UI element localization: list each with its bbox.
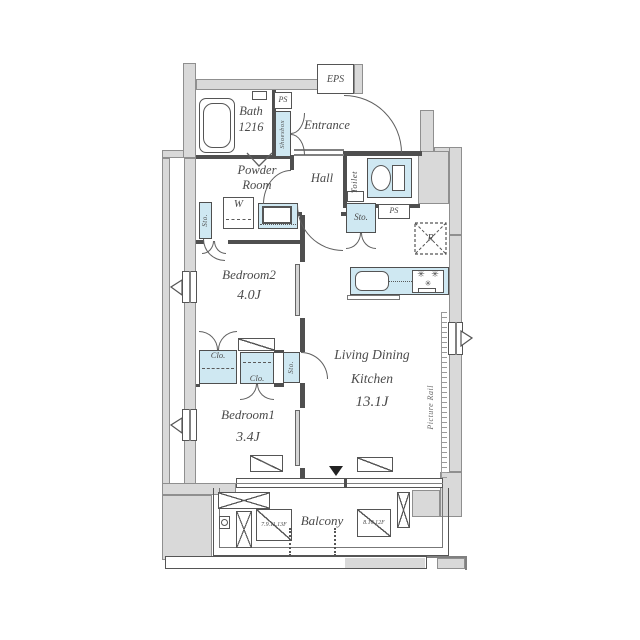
site-strip-gray	[345, 558, 425, 568]
wall-ldk-west-2	[300, 318, 305, 352]
counter-shelf	[347, 295, 400, 300]
ac-unit-left-label: 7.9.11.13F	[261, 522, 287, 529]
vent-triangle-right	[460, 330, 473, 347]
kitchen-sink	[355, 271, 389, 291]
ps-top-label: PS	[279, 96, 288, 105]
sto-bedroom-label: Sto.	[288, 361, 296, 374]
fridge-label: R	[414, 222, 447, 255]
ps-side-box: PS	[378, 204, 410, 219]
closet-left-door-r	[218, 331, 237, 350]
site-strip-end	[465, 556, 467, 570]
bedroom1-sliding-door	[295, 410, 300, 466]
washer-label: W	[234, 198, 243, 210]
wall-top-left-stub	[183, 63, 196, 158]
ldk-size: 13.1J	[320, 394, 424, 411]
balcony-drain-circle	[221, 519, 228, 526]
equipment-box-left	[236, 511, 252, 548]
toilet-bowl	[371, 165, 391, 191]
sto-hall-label: Sto.	[354, 213, 368, 223]
closet-left-door-l	[199, 331, 218, 350]
picture-rail-label-wrap: Picture Rail	[424, 362, 438, 452]
equipment-box-horizontal	[218, 492, 270, 509]
bath-size: 1216	[228, 121, 274, 135]
wall-storage-bottom-stub	[274, 383, 284, 387]
hall-label: Hall	[300, 172, 344, 186]
shoesbox-label: Shoesbox	[279, 120, 286, 149]
wall-right-upper	[449, 147, 462, 235]
washer-box: W	[223, 197, 254, 229]
toilet-tank	[392, 165, 405, 191]
closet-mid-door-r	[257, 384, 274, 400]
site-strip-ext-gray	[437, 558, 465, 569]
wall-powder-bottom-b	[228, 240, 304, 244]
powder-room-label-1: Powder	[224, 164, 290, 178]
wall-entry-right	[420, 110, 434, 157]
vent-triangle-left-upper	[170, 279, 183, 296]
equipment-box-right	[397, 492, 410, 528]
shoesbox: Shoesbox	[275, 111, 291, 157]
bedroom1-size: 3.4J	[204, 430, 292, 445]
sto-bedroom-box: Sto.	[283, 352, 300, 383]
eps-box: EPS	[317, 64, 354, 94]
beam-bedroom1	[250, 455, 283, 472]
toilet-label-wrap: Toilet	[347, 160, 362, 204]
sto-powder-label: Sto.	[202, 214, 210, 227]
closet-mid-rod	[243, 362, 271, 363]
wall-bedroom1-top-stub	[196, 384, 200, 387]
balcony-window-mullion	[344, 478, 347, 488]
wall-powder-hall-a	[290, 155, 294, 170]
sto-hall-box: Sto.	[346, 203, 376, 233]
wall-far-left	[162, 158, 170, 491]
window-left-upper-mullion	[189, 271, 191, 303]
ldk-label-2: Kitchen	[320, 372, 424, 387]
ac-unit-right-label: 8.10.12F	[363, 520, 385, 527]
bathtub-inner	[203, 103, 231, 148]
closet-mid-label: Clo.	[250, 374, 264, 383]
vent-triangle-left-lower	[170, 417, 183, 434]
bedroom2-sliding-door	[295, 264, 300, 316]
closet-left-rod	[202, 368, 234, 369]
closet-left-label: Clo.	[211, 351, 225, 360]
entrance-label: Entrance	[294, 119, 360, 133]
ldk-label-1: Living Dining	[320, 348, 424, 363]
balcony-window-centerline	[236, 483, 443, 485]
closet-left: Clo.	[199, 350, 237, 384]
ps-side-label: PS	[390, 207, 399, 216]
sto-powder-box: Sto.	[199, 202, 212, 239]
bedroom2-name: Bedroom2	[206, 268, 292, 282]
fridge-space: R	[414, 222, 447, 255]
window-left-lower-mullion	[189, 409, 191, 441]
balcony-divider-2	[334, 528, 336, 556]
wall-left-step	[162, 150, 184, 158]
toilet-label: Toilet	[350, 171, 359, 193]
powder-room-label-2: Room	[224, 179, 290, 193]
balcony-label: Balcony	[292, 514, 352, 528]
sto-hall-door-arc-l	[346, 233, 361, 249]
eps-label: EPS	[327, 74, 344, 85]
ac-unit-right: 8.10.12F	[357, 509, 391, 537]
bedroom2-slide-panel	[238, 338, 275, 351]
stove-grill	[418, 288, 436, 293]
counter-dashed-line	[389, 281, 412, 282]
shoesbox-door-arc-bottom	[291, 134, 305, 155]
wall-ldk-west-3	[300, 383, 305, 408]
picture-rail-label: Picture Rail	[427, 385, 436, 430]
vanity-sink	[262, 206, 292, 224]
closet-mid: Clo.	[240, 352, 274, 384]
balcony-divider-1	[289, 528, 291, 556]
picture-rail-strip	[441, 312, 447, 478]
floor-plan: PS Shoesbox EPS Sto. W Toilet Sto. PS	[0, 0, 640, 640]
wall-eps-side	[354, 64, 363, 94]
bedroom2-size: 4.0J	[206, 288, 292, 303]
sto-hall-door-arc-r	[361, 233, 376, 249]
bath-niche	[252, 91, 267, 100]
bath-name: Bath	[230, 105, 272, 119]
window-right-mullion	[455, 322, 457, 355]
washer-dashed-line	[226, 219, 251, 220]
wall-bottom-left-b	[162, 495, 212, 560]
wall-toilet-right	[418, 151, 449, 204]
bedroom1-name: Bedroom1	[204, 408, 292, 422]
vanity-dashed-line	[260, 224, 296, 225]
beam-ldk	[357, 457, 393, 472]
closet-mid-door-l	[240, 384, 257, 400]
orientation-marker	[329, 466, 343, 476]
ps-top-box: PS	[274, 92, 292, 109]
ac-unit-left: 7.9.11.13F	[256, 509, 292, 541]
